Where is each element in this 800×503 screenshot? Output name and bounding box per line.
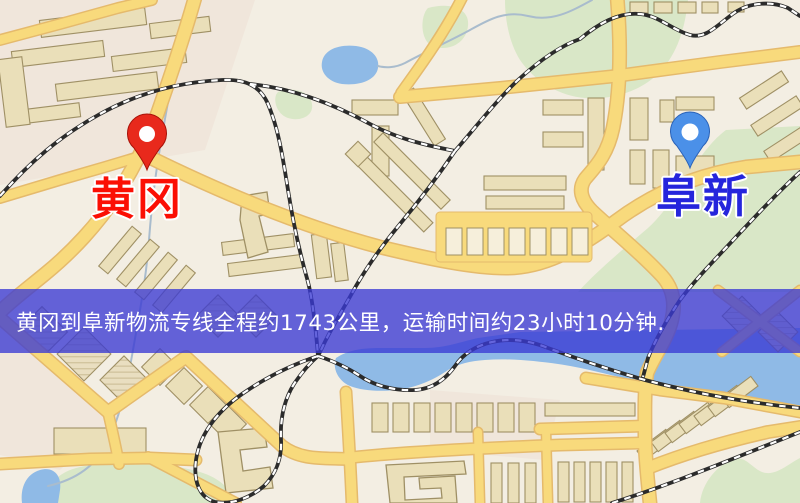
origin-pin-hole	[139, 126, 155, 142]
lake-top	[322, 46, 379, 85]
comb-buildings	[446, 228, 588, 255]
origin-label: 黄冈	[91, 174, 183, 225]
map-image: 黄冈 阜新 黄冈到阜新物流专线全程约1743公里，运输时间约23小时10分钟.	[0, 0, 800, 503]
destination-pin-hole	[682, 124, 699, 141]
logistics-route-map: 黄冈 阜新 黄冈到阜新物流专线全程约1743公里，运输时间约23小时10分钟.	[0, 0, 800, 503]
banner-text: 黄冈到阜新物流专线全程约1743公里，运输时间约23小时10分钟.	[16, 311, 665, 336]
destination-label: 阜新	[656, 170, 750, 223]
